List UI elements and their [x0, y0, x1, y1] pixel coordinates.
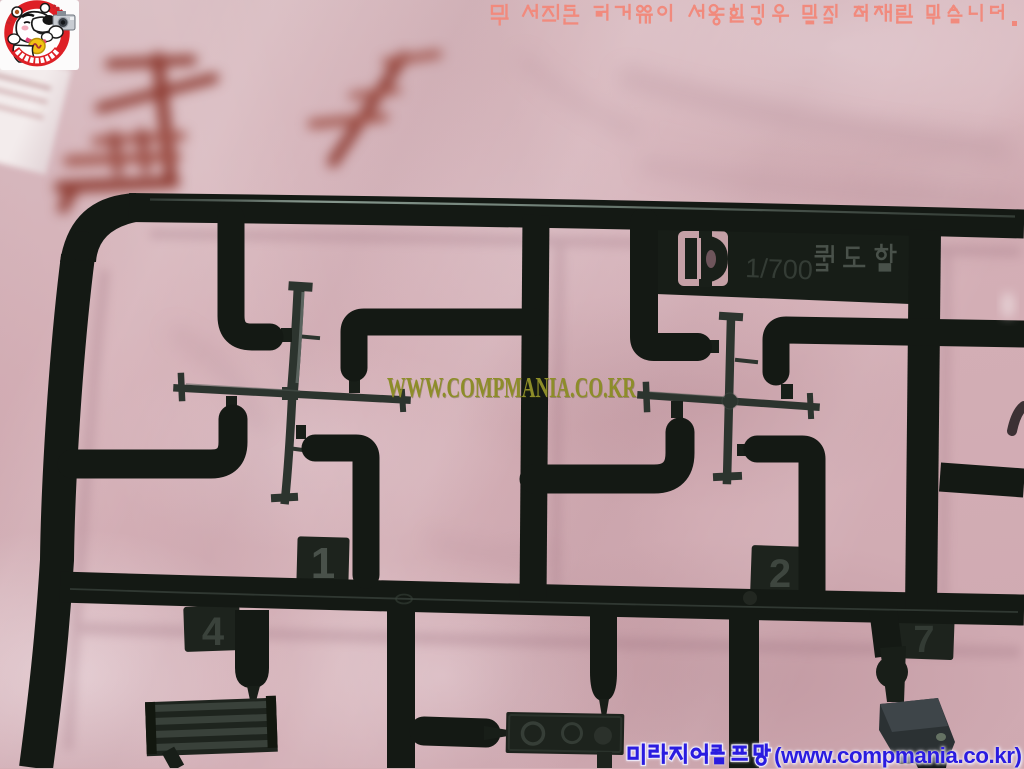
svg-text:1/700: 1/700	[745, 253, 814, 285]
svg-text:2: 2	[769, 552, 791, 596]
svg-text:4: 4	[202, 610, 225, 654]
svg-text:7: 7	[913, 619, 934, 661]
